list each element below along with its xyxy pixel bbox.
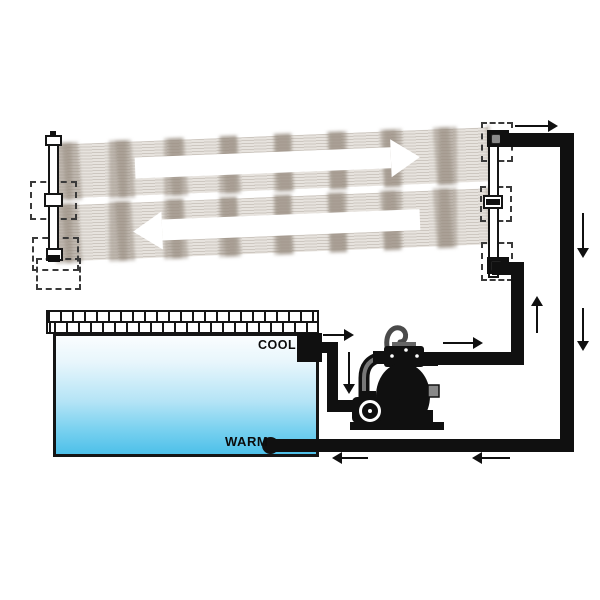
left-manifold-bottom-plug [48, 255, 60, 262]
pipe-return-down [560, 133, 574, 452]
flow-arrow-up-icon [536, 306, 538, 333]
left-manifold-top-tip [50, 131, 56, 136]
pipe-warm-return [268, 439, 574, 452]
pump-face-hub [368, 409, 372, 413]
flow-arrow-down-icon [582, 213, 584, 248]
flow-arrow-right-icon [515, 125, 548, 127]
solar-pool-heater-diagram: COOL WARM [0, 0, 600, 600]
warm-label: WARM [225, 435, 268, 449]
pump-base [350, 422, 444, 430]
flow-arrow-right-icon [323, 334, 344, 336]
valve-left-port [373, 351, 386, 364]
solar-panel-bottom-row [56, 188, 490, 261]
left-manifold-union [44, 193, 63, 207]
left-manifold-top-cap [45, 135, 62, 146]
tank-drain-port [428, 385, 439, 397]
cool-label: COOL [258, 338, 296, 352]
flow-arrow-down-icon [348, 352, 350, 384]
valve-bolt [415, 354, 419, 358]
pipe-pump-to-panel-riser [511, 262, 524, 365]
sand-filter-pump [340, 298, 470, 434]
flow-arrow-right-icon [443, 342, 473, 344]
valve-bolt [390, 354, 394, 358]
pool-deck-tiles-row [46, 321, 319, 334]
valve-bolt [404, 348, 408, 352]
left-manifold-dashed-connector [36, 258, 81, 290]
flow-arrow-left-icon [342, 457, 368, 459]
pool-cool-outlet-box [297, 333, 322, 362]
valve-right-port [422, 352, 438, 366]
right-manifold-union-band [486, 199, 500, 205]
flow-arrow-down-icon [582, 308, 584, 341]
flow-arrow-left-icon [482, 457, 510, 459]
